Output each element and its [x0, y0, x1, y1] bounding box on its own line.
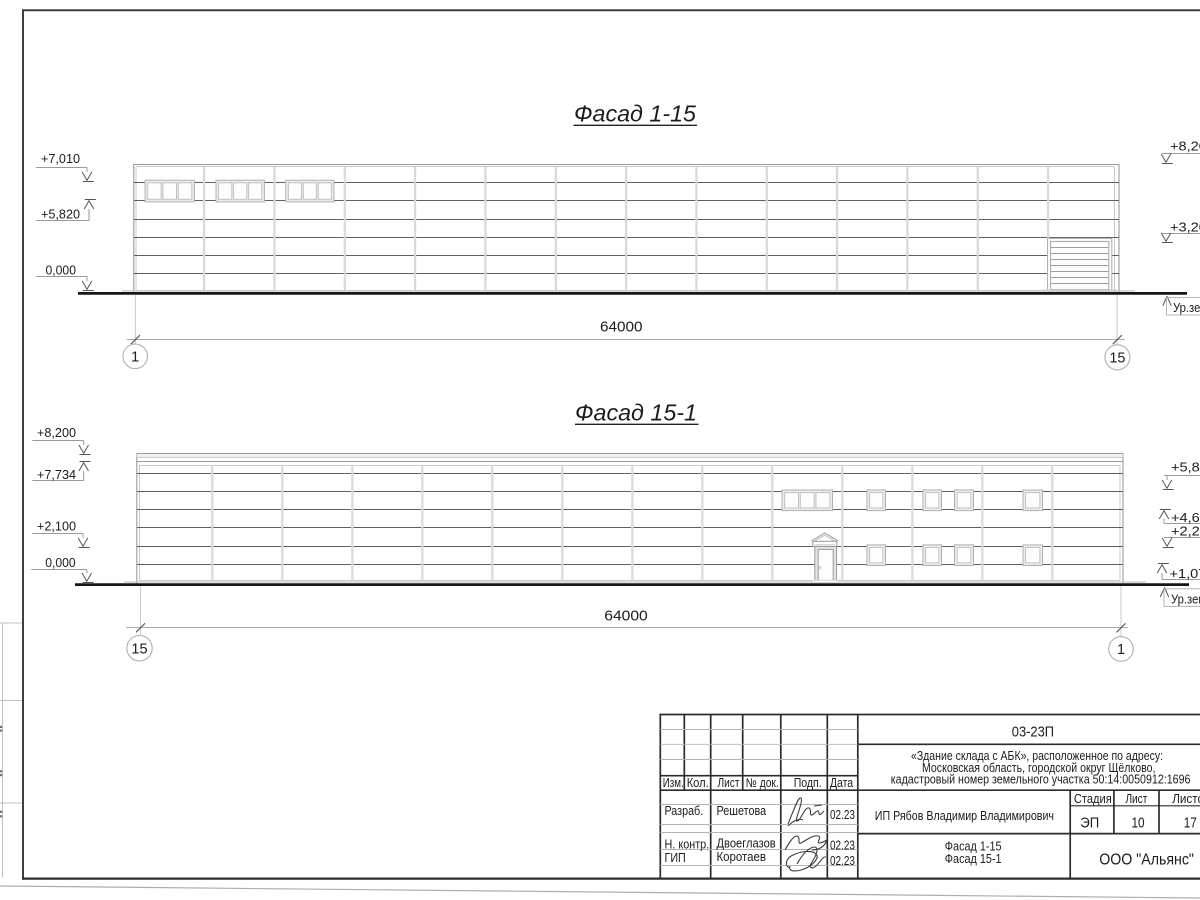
svg-text:Двоеглазов: Двоеглазов	[717, 836, 777, 850]
svg-text:Стадия: Стадия	[1074, 792, 1112, 806]
svg-text:10: 10	[1131, 815, 1144, 832]
svg-text:кадастровый номер земельного у: кадастровый номер земельного участка 50:…	[891, 773, 1191, 787]
svg-text:Н. контр.: Н. контр.	[665, 837, 710, 851]
svg-text:Подп.: Подп.	[794, 776, 822, 790]
svg-text:+7,010: +7,010	[41, 151, 80, 166]
svg-text:+3,200: +3,200	[1170, 219, 1200, 234]
svg-text:Дата: Дата	[830, 776, 853, 790]
svg-text:Фасад 15-1: Фасад 15-1	[945, 852, 1002, 866]
svg-text:02.23: 02.23	[830, 839, 855, 853]
svg-text:+8,200: +8,200	[37, 425, 76, 440]
svg-text:Лист: Лист	[718, 776, 740, 790]
svg-text:+1,070: +1,070	[1170, 566, 1200, 581]
svg-text:Разраб.: Разраб.	[665, 804, 704, 818]
svg-text:15: 15	[1109, 351, 1125, 367]
svg-text:+5,820: +5,820	[1171, 459, 1200, 474]
svg-text:Решетова: Решетова	[717, 804, 767, 818]
svg-text:17: 17	[1184, 815, 1197, 832]
svg-text:+8,200: +8,200	[1170, 139, 1200, 154]
svg-text:ИП Рябов Владимир Владимирович: ИП Рябов Владимир Владимирович	[875, 808, 1054, 823]
svg-text:Лист: Лист	[1125, 792, 1147, 806]
svg-text:Листов: Листов	[1172, 792, 1200, 806]
svg-text:64000: 64000	[604, 607, 648, 624]
svg-text:03-23П: 03-23П	[1012, 723, 1054, 740]
svg-text:Фасад 15-1: Фасад 15-1	[575, 400, 697, 426]
svg-text:15: 15	[131, 642, 147, 658]
svg-text:Кол.: Кол.	[687, 776, 709, 790]
svg-text:Коротаев: Коротаев	[717, 850, 767, 864]
svg-text:Изм.: Изм.	[663, 776, 684, 790]
svg-text:+2,260: +2,260	[1171, 524, 1200, 539]
svg-text:Ур.земли: Ур.земли	[1173, 300, 1200, 315]
svg-text:ООО "Альянс": ООО "Альянс"	[1099, 851, 1194, 868]
svg-text:ЭП: ЭП	[1080, 815, 1099, 832]
svg-text:0,000: 0,000	[46, 262, 77, 277]
svg-text:+7,734: +7,734	[37, 467, 76, 482]
svg-text:1: 1	[131, 350, 139, 366]
svg-text:Ур.земли: Ур.земли	[1171, 591, 1200, 606]
svg-text:02.23: 02.23	[830, 854, 855, 868]
svg-text:1: 1	[1117, 642, 1125, 658]
svg-text:02.23: 02.23	[830, 808, 855, 822]
svg-text:ГИП: ГИП	[665, 851, 686, 865]
svg-text:№ док.: № док.	[746, 776, 779, 790]
svg-text:64000: 64000	[600, 318, 643, 335]
svg-text:+2,100: +2,100	[37, 519, 76, 534]
svg-text:0,000: 0,000	[45, 555, 76, 570]
svg-text:Фасад 1-15: Фасад 1-15	[574, 101, 696, 127]
svg-text:+5,820: +5,820	[41, 207, 80, 222]
